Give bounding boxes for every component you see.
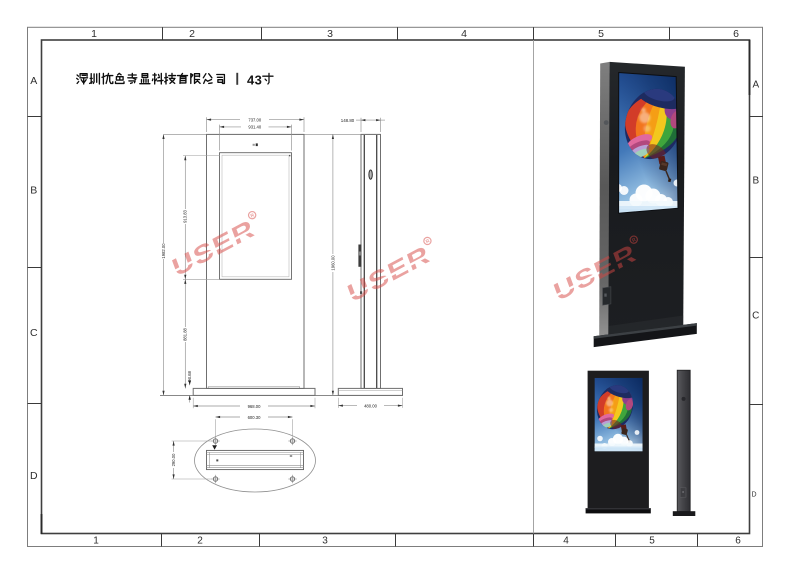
svg-text:1: 1 [91,28,97,40]
svg-text:2: 2 [189,28,195,40]
svg-text:737.00: 737.00 [248,117,261,122]
svg-text:93.68: 93.68 [187,370,192,382]
svg-text:D: D [30,470,38,482]
svg-text:480.00: 480.00 [364,404,377,409]
svg-text:3: 3 [322,536,328,547]
svg-text:D: D [751,492,756,499]
svg-text:A: A [30,75,37,87]
svg-text:B: B [752,176,759,187]
svg-text:968.00: 968.00 [248,404,261,409]
svg-text:881.88: 881.88 [183,327,188,340]
svg-text:6: 6 [735,536,741,547]
svg-text:C: C [30,327,38,339]
svg-text:1982.00: 1982.00 [161,243,166,259]
svg-text:C: C [752,311,759,322]
svg-text:148.80: 148.80 [341,118,355,123]
svg-text:5: 5 [598,28,604,40]
svg-text:A: A [752,80,759,91]
svg-text:290.00: 290.00 [171,453,176,466]
svg-text:4: 4 [563,536,569,547]
svg-text:2: 2 [197,536,203,547]
svg-text:913.83: 913.83 [183,209,188,222]
svg-text:1: 1 [93,536,99,547]
svg-text:1960.00: 1960.00 [330,255,335,271]
svg-text:B: B [30,185,37,197]
svg-text:6: 6 [733,28,739,40]
svg-text:43: 43 [247,73,262,88]
svg-text:4: 4 [461,28,467,40]
svg-text:3: 3 [327,28,333,40]
svg-text:5: 5 [649,536,655,547]
svg-text:931.40: 931.40 [248,125,261,130]
svg-text:600.30: 600.30 [248,415,261,420]
